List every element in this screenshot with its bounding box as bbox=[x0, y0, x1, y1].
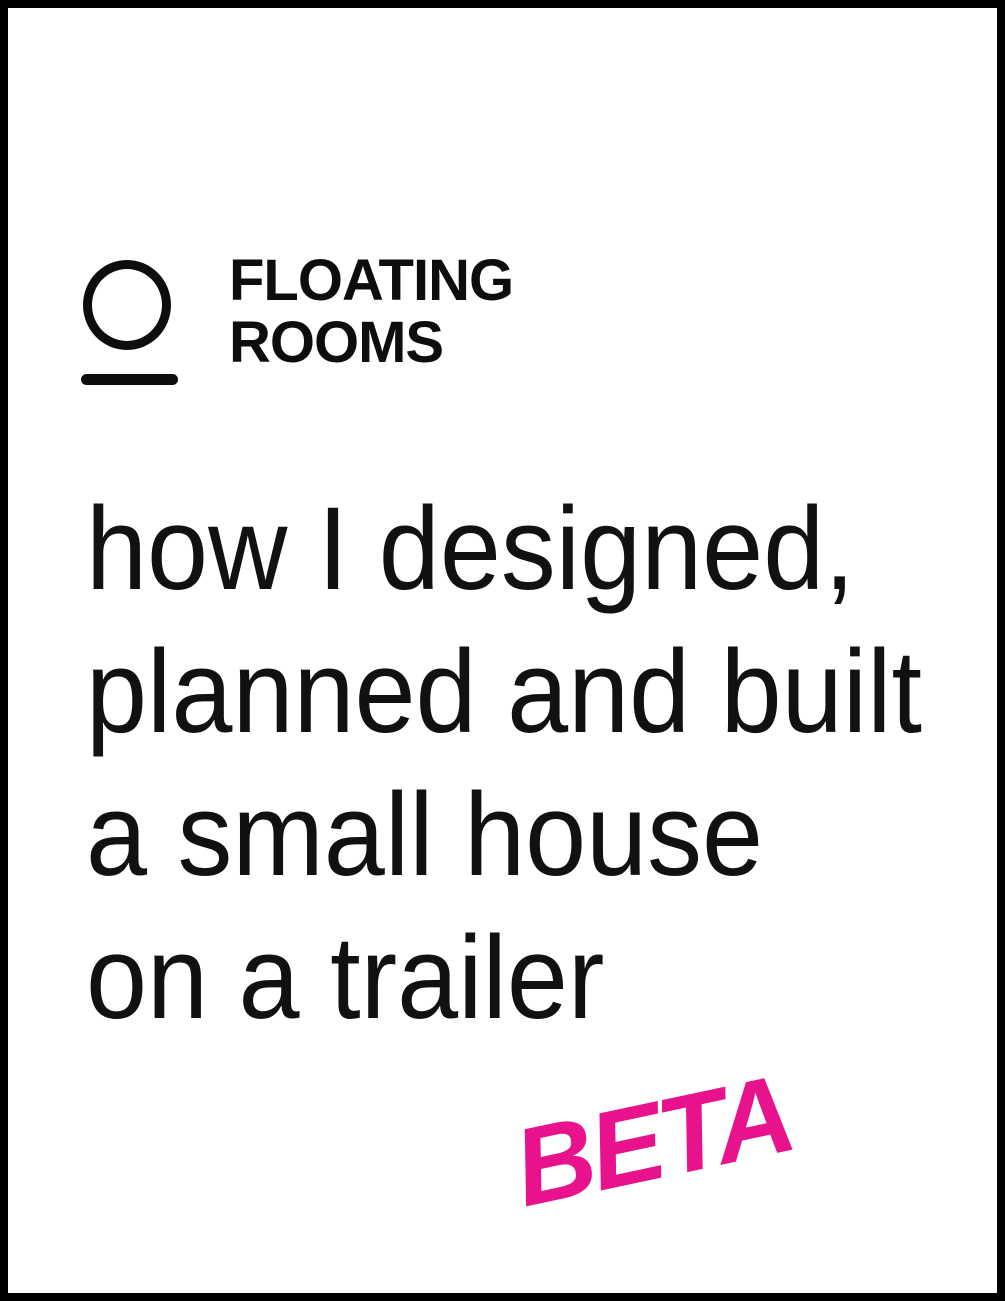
headline-line-1: how I designed, bbox=[86, 478, 922, 621]
headline-line-2: planned and built bbox=[86, 621, 922, 764]
slide-page: FLOATING ROOMS how I designed, planned a… bbox=[0, 0, 1005, 1301]
logo-wordmark-line1: FLOATING bbox=[229, 250, 513, 312]
logo-circle-icon bbox=[83, 260, 171, 350]
beta-badge: BETA bbox=[503, 1050, 803, 1232]
headline-line-3: a small house bbox=[86, 764, 922, 907]
headline-line-4: on a trailer bbox=[86, 907, 922, 1050]
page-title: how I designed, planned and built a smal… bbox=[86, 478, 922, 1050]
logo-wordmark: FLOATING ROOMS bbox=[229, 250, 513, 374]
logo-wordmark-line2: ROOMS bbox=[229, 312, 513, 374]
logo-underline-icon bbox=[81, 374, 178, 385]
